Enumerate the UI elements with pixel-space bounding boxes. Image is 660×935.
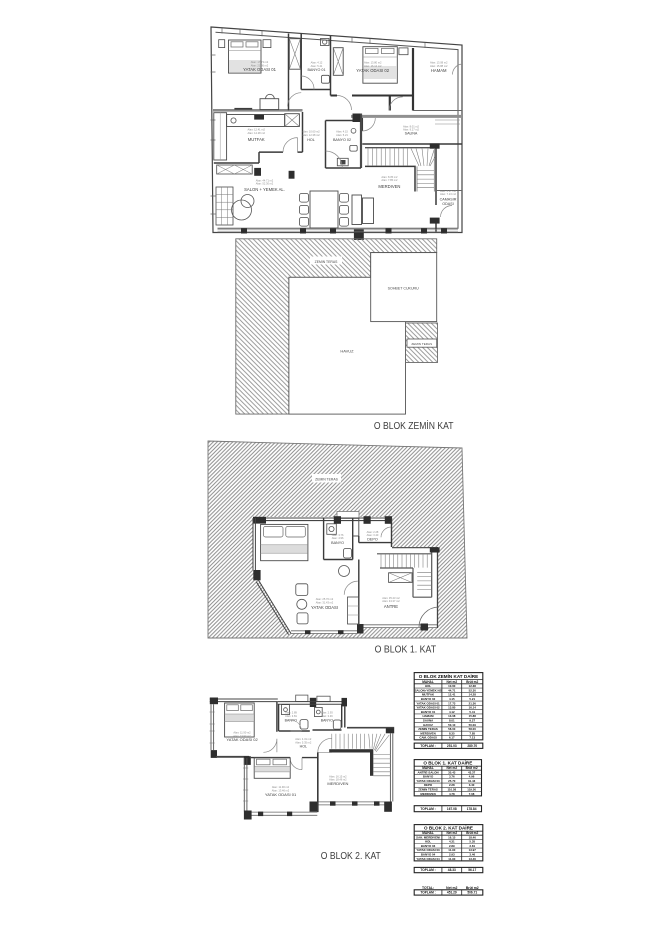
svg-text:MERDIVEN: MERDIVEN [420, 792, 435, 796]
svg-text:13.46: 13.46 [469, 857, 477, 861]
svg-text:TOPLAM :: TOPLAM : [420, 744, 435, 748]
svg-text:CAMASIR: CAMASIR [440, 198, 457, 202]
svg-text:6.17: 6.17 [449, 736, 455, 740]
svg-text:YATAK ODASI 04: YATAK ODASI 04 [416, 857, 440, 861]
svg-text:CAM. ODASI: CAM. ODASI [419, 736, 437, 740]
svg-text:YATAK ODASI 02: YATAK ODASI 02 [356, 68, 389, 73]
svg-text:7.13: 7.13 [469, 736, 475, 740]
svg-text:ODASI: ODASI [442, 202, 453, 206]
svg-text:11.90: 11.90 [448, 857, 455, 861]
svg-text:Alan: 52.30 m2: Alan: 52.30 m2 [256, 182, 274, 186]
svg-text:HAVUZ: HAVUZ [340, 349, 354, 354]
svg-text:Alan: 7.85 m2: Alan: 7.85 m2 [381, 178, 398, 182]
svg-text:Alan: 3.40: Alan: 3.40 [367, 533, 379, 537]
svg-text:56.17: 56.17 [468, 868, 476, 872]
svg-text:SAUNA: SAUNA [405, 132, 418, 136]
svg-text:YATAK ODASI: YATAK ODASI [311, 605, 338, 610]
svg-text:ANTRE: ANTRE [384, 604, 398, 609]
svg-text:MERDIVEN: MERDIVEN [378, 184, 400, 189]
svg-text:7.08: 7.08 [469, 792, 475, 796]
svg-text:TOPLAM :: TOPLAM : [420, 807, 435, 811]
svg-text:O BLOK 1. KAT DAİRE: O BLOK 1. KAT DAİRE [423, 759, 472, 765]
svg-text:O BLOK ZEMİN KAT: O BLOK ZEMİN KAT [374, 419, 454, 432]
svg-text:Alan: 14.28 m2: Alan: 14.28 m2 [247, 131, 265, 135]
svg-text:BANYO 02: BANYO 02 [333, 138, 351, 142]
svg-text:YATAK ODASI 01: YATAK ODASI 01 [265, 792, 297, 797]
svg-text:SALON + YEMEK AL.: SALON + YEMEK AL. [244, 187, 285, 192]
svg-text:48.33: 48.33 [448, 868, 456, 872]
svg-text:BANYO: BANYO [285, 718, 298, 722]
svg-text:BANYO 01: BANYO 01 [307, 68, 325, 72]
svg-text:4.78: 4.78 [449, 792, 455, 796]
svg-text:178.84: 178.84 [467, 807, 477, 811]
svg-text:Alan: 43.37 m2: Alan: 43.37 m2 [382, 599, 400, 603]
svg-text:451.29: 451.29 [447, 891, 457, 895]
svg-text:O BLOK ZEMİN KAT DAİRE: O BLOK ZEMİN KAT DAİRE [419, 673, 478, 679]
svg-text:BANYO: BANYO [321, 718, 334, 722]
svg-text:YATAK ODASI 02: YATAK ODASI 02 [226, 737, 258, 742]
svg-text:MERDIVEN: MERDIVEN [327, 781, 348, 786]
svg-text:Alan: 12.38 m2: Alan: 12.38 m2 [302, 133, 320, 137]
svg-text:ZEMIN TERAS: ZEMIN TERAS [411, 342, 432, 346]
svg-text:O BLOK 2. KAT: O BLOK 2. KAT [321, 850, 381, 862]
svg-text:506.71: 506.71 [467, 891, 477, 895]
svg-text:TOPLAM :: TOPLAM : [420, 891, 435, 895]
svg-text:ZEMIN TERAS: ZEMIN TERAS [315, 260, 338, 264]
svg-text:HAMAM: HAMAM [431, 68, 447, 73]
svg-text:Alan: 5.21: Alan: 5.21 [336, 133, 348, 137]
svg-text:Alan: 4.96: Alan: 4.96 [332, 536, 344, 540]
svg-text:HOL: HOL [300, 745, 307, 749]
svg-text:280.70: 280.70 [467, 744, 477, 748]
svg-text:YATAK ODASI 01: YATAK ODASI 01 [243, 67, 276, 72]
svg-text:BANYO: BANYO [331, 541, 344, 545]
svg-text:ZEMIN TERAS: ZEMIN TERAS [315, 478, 338, 482]
svg-text:Alan: 5.41: Alan: 5.41 [311, 64, 323, 68]
svg-text:MUTFAK: MUTFAK [248, 137, 265, 142]
svg-text:Alan: 7.13 m2: Alan: 7.13 m2 [440, 192, 457, 196]
svg-text:O BLOK 2. KAT DAİRE: O BLOK 2. KAT DAİRE [424, 824, 473, 830]
svg-text:TOPLAM :: TOPLAM : [420, 868, 435, 872]
svg-text:251.03: 251.03 [447, 744, 457, 748]
svg-text:O BLOK 1. KAT: O BLOK 1. KAT [375, 644, 437, 656]
svg-text:167.08: 167.08 [447, 807, 457, 811]
svg-text:HOL: HOL [307, 138, 315, 142]
svg-text:SOHBET CUKURU: SOHBET CUKURU [388, 287, 419, 291]
svg-text:DEPO: DEPO [367, 538, 378, 542]
svg-text:Alan: 31.43 m2: Alan: 31.43 m2 [316, 601, 334, 605]
